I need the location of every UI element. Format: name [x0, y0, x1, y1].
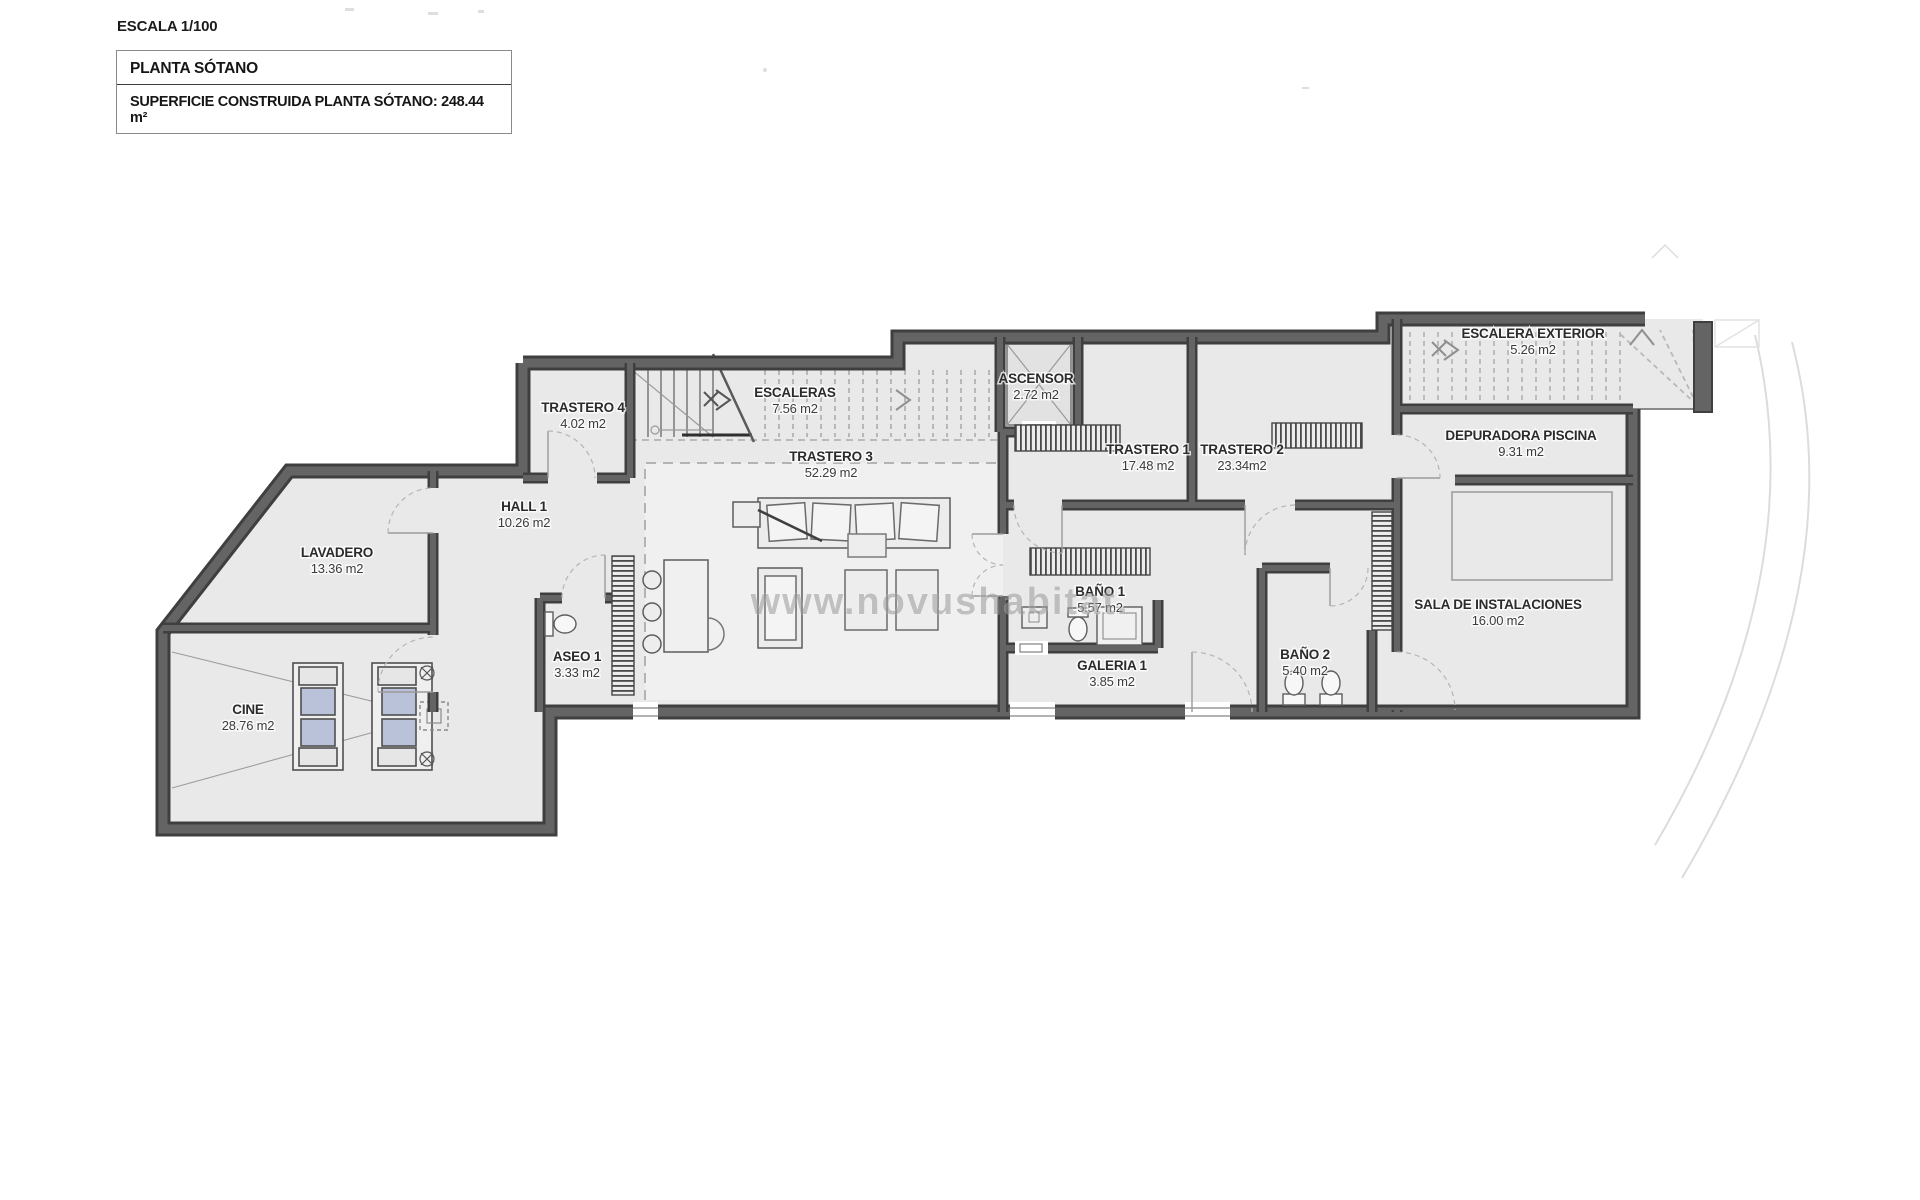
room-area-galeria1: 3.85 m2: [1089, 674, 1135, 689]
stool: [643, 635, 661, 653]
room-area-ascensor: 2.72 m2: [1013, 387, 1059, 402]
room-label-trastero4: TRASTERO 4: [541, 400, 625, 415]
floorplan-page: ESCALA 1/100 PLANTA SÓTANO SUPERFICIE CO…: [0, 0, 1920, 1200]
room-area-aseo1: 3.33 m2: [554, 665, 600, 680]
room-label-escalera-exterior: ESCALERA EXTERIOR: [1461, 326, 1605, 341]
watermark-text: www.novushabitat.: [750, 581, 1130, 623]
room-area-trastero3: 52.29 m2: [805, 465, 858, 480]
stool: [643, 603, 661, 621]
room-label-aseo1: ASEO 1: [553, 649, 602, 664]
room-area-trastero4: 4.02 m2: [560, 416, 606, 431]
seat-cushion: [301, 688, 335, 715]
room-label-depuradora-piscina: DEPURADORA PISCINA: [1445, 428, 1597, 443]
room-label-galeria1: GALERIA 1: [1077, 658, 1147, 673]
closet: [1015, 425, 1120, 451]
room-area-depuradora-piscina: 9.31 m2: [1498, 444, 1544, 459]
seat-cushion: [382, 719, 416, 746]
floor-plan-canvas: TRASTERO 44.02 m2ESCALERAS7.56 m2TRASTER…: [0, 0, 1920, 1200]
closet: [1030, 548, 1150, 575]
room-label-ascensor: ASCENSOR: [999, 371, 1074, 386]
room-label-hall1: HALL 1: [501, 499, 547, 514]
room-label-trastero2: TRASTERO 2: [1200, 442, 1284, 457]
room-area-trastero2: 23.34m2: [1217, 458, 1266, 473]
small-table: [848, 534, 886, 557]
seat-cushion: [301, 719, 335, 746]
room-label-trastero3: TRASTERO 3: [789, 449, 873, 464]
bath1-window: [1015, 641, 1048, 655]
room-label-cine: CINE: [232, 702, 264, 717]
sofa-cushion: [899, 503, 939, 542]
stool: [643, 571, 661, 589]
room-area-lavadero: 13.36 m2: [311, 561, 364, 576]
closet-vertical: [1372, 512, 1392, 630]
sofa-cushion: [811, 503, 851, 541]
room-label-trastero1: TRASTERO 1: [1106, 442, 1190, 457]
room-area-hall1: 10.26 m2: [498, 515, 551, 530]
exterior-stair-pillar: [1694, 322, 1712, 412]
room-label-bano2: BAÑO 2: [1280, 647, 1330, 662]
print-artifacts: [345, 8, 1309, 89]
room-area-cine: 28.76 m2: [222, 718, 275, 733]
room-label-lavadero: LAVADERO: [301, 545, 373, 560]
closet: [1272, 423, 1362, 448]
opening: [1010, 702, 1055, 722]
room-area-escaleras: 7.56 m2: [772, 401, 818, 416]
room-area-trastero1: 17.48 m2: [1122, 458, 1175, 473]
island-table: [664, 560, 708, 652]
room-label-escaleras: ESCALERAS: [754, 385, 836, 400]
room-area-sala-instalaciones: 16.00 m2: [1472, 613, 1525, 628]
shaft-column: [612, 556, 634, 695]
room-label-sala-instalaciones: SALA DE INSTALACIONES: [1414, 597, 1582, 612]
tv-box: [733, 502, 760, 527]
opening: [633, 702, 658, 722]
room-area-bano2: 5.40 m2: [1282, 663, 1328, 678]
room-area-escalera-exterior: 5.26 m2: [1510, 342, 1556, 357]
sofa-cushion: [767, 503, 807, 542]
